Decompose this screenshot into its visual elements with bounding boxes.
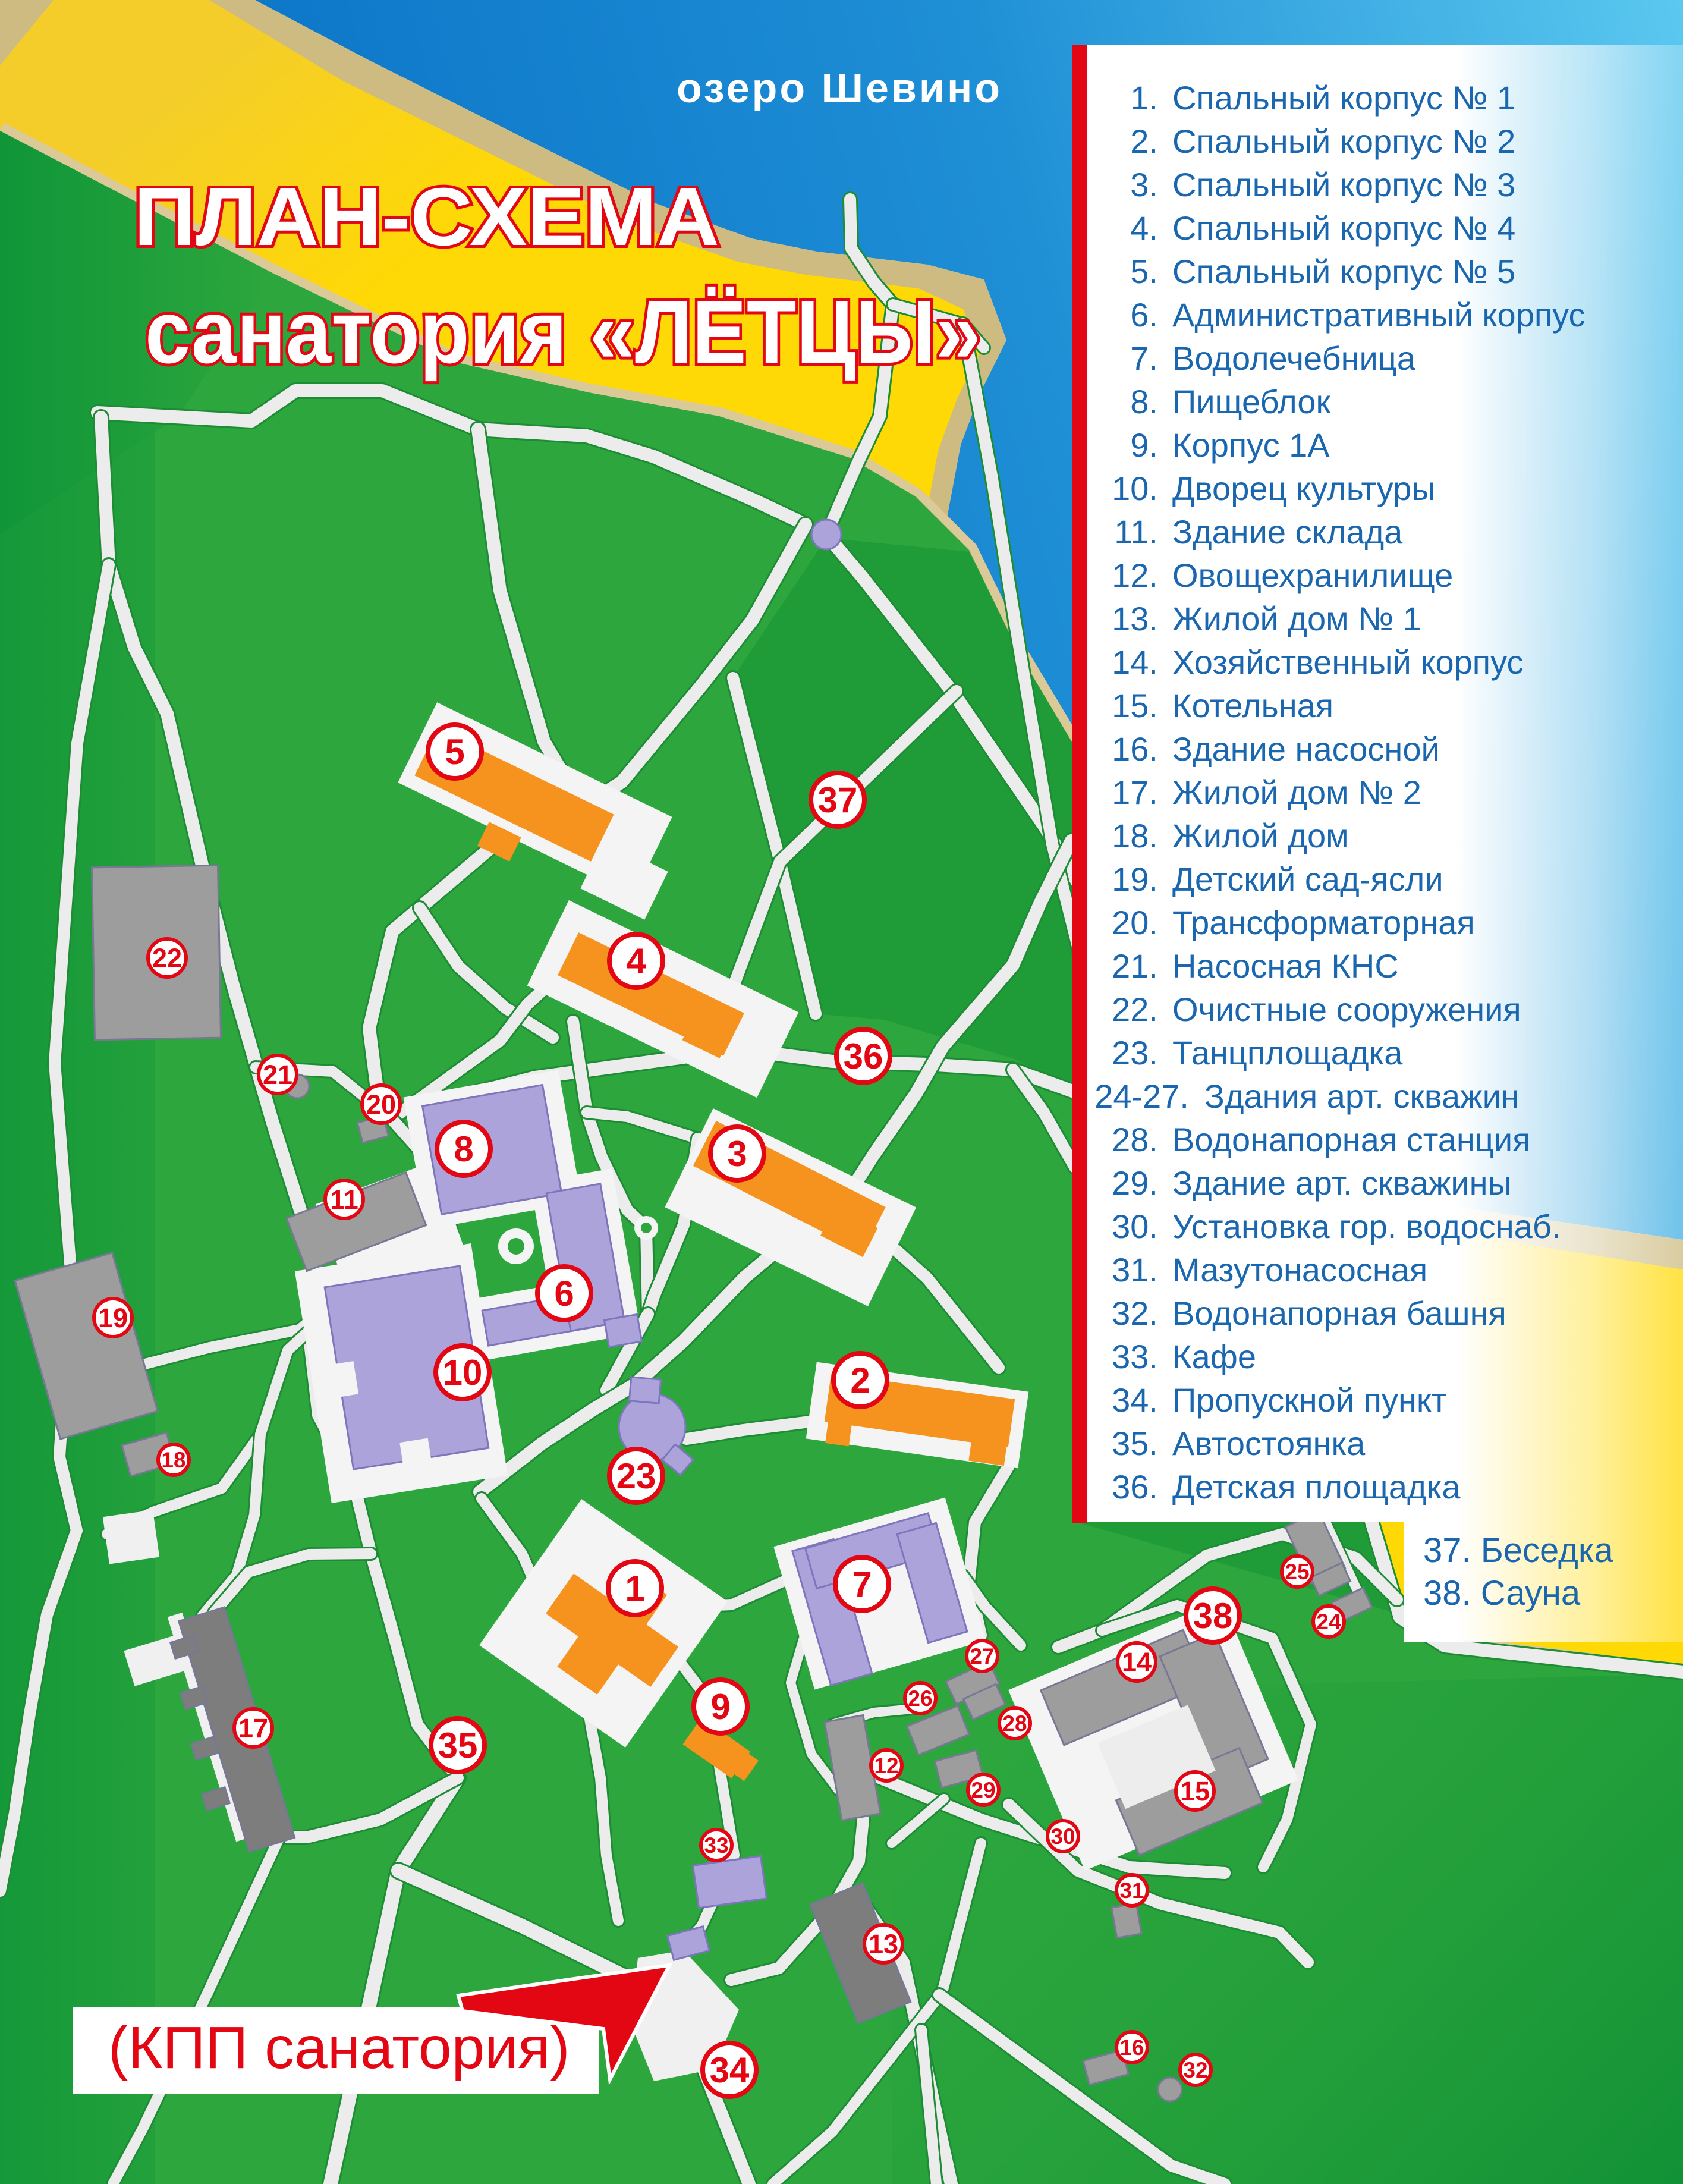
svg-text:17.: 17.	[1112, 774, 1158, 811]
svg-text:36: 36	[844, 1036, 883, 1076]
svg-text:22: 22	[152, 943, 182, 973]
svg-text:Дворец культуры: Дворец культуры	[1172, 470, 1436, 507]
svg-text:1.: 1.	[1130, 79, 1158, 117]
svg-text:Очистные сооружения: Очистные сооружения	[1172, 991, 1521, 1028]
svg-text:Овощехранилище: Овощехранилище	[1172, 557, 1453, 594]
svg-text:Здания арт. скважин: Здания арт. скважин	[1204, 1077, 1520, 1115]
svg-text:7.: 7.	[1130, 340, 1158, 377]
svg-text:(КПП санатория): (КПП санатория)	[108, 2015, 570, 2081]
svg-text:Кафе: Кафе	[1172, 1338, 1256, 1375]
svg-text:16.: 16.	[1112, 730, 1158, 768]
svg-text:30.: 30.	[1112, 1208, 1158, 1245]
svg-text:Водолечебница: Водолечебница	[1172, 340, 1416, 377]
svg-text:санатория «ЛЁТЦЫ»: санатория «ЛЁТЦЫ»	[145, 282, 981, 382]
svg-text:Пищеблок: Пищеблок	[1172, 383, 1331, 420]
svg-text:10: 10	[443, 1353, 483, 1393]
svg-text:36.: 36.	[1112, 1468, 1158, 1506]
svg-text:Котельная: Котельная	[1172, 687, 1333, 724]
svg-text:9: 9	[710, 1687, 730, 1727]
svg-text:Установка гор. водоснаб.: Установка гор. водоснаб.	[1172, 1208, 1561, 1245]
svg-text:4: 4	[626, 941, 646, 981]
svg-text:6.: 6.	[1130, 296, 1158, 334]
svg-text:5.: 5.	[1130, 253, 1158, 290]
svg-text:Спальный корпус № 3: Спальный корпус № 3	[1172, 166, 1515, 203]
svg-text:13: 13	[869, 1929, 898, 1959]
svg-text:Детская площадка: Детская площадка	[1172, 1468, 1461, 1506]
svg-text:Корпус 1А: Корпус 1А	[1172, 426, 1330, 464]
svg-text:13.: 13.	[1112, 600, 1158, 637]
svg-text:16: 16	[1119, 2035, 1144, 2060]
svg-text:Трансформаторная: Трансформаторная	[1172, 904, 1475, 941]
svg-text:19: 19	[98, 1303, 128, 1333]
svg-text:30: 30	[1050, 1824, 1075, 1849]
svg-text:23: 23	[616, 1456, 656, 1496]
svg-text:1: 1	[625, 1569, 644, 1608]
svg-text:31: 31	[1119, 1878, 1144, 1903]
svg-text:33.: 33.	[1112, 1338, 1158, 1375]
svg-text:37: 37	[818, 780, 858, 820]
svg-text:Танцплощадка: Танцплощадка	[1172, 1034, 1403, 1071]
svg-text:22.: 22.	[1112, 991, 1158, 1028]
svg-text:21.: 21.	[1112, 947, 1158, 985]
svg-text:Автостоянка: Автостоянка	[1172, 1425, 1366, 1462]
svg-text:Жилой дом: Жилой дом	[1172, 817, 1349, 854]
svg-text:26: 26	[908, 1686, 932, 1711]
svg-text:32.: 32.	[1112, 1294, 1158, 1332]
svg-text:12: 12	[874, 1754, 898, 1778]
svg-text:28.: 28.	[1112, 1121, 1158, 1158]
svg-text:Спальный корпус № 5: Спальный корпус № 5	[1172, 253, 1515, 290]
svg-text:11.: 11.	[1114, 513, 1158, 551]
svg-text:27: 27	[970, 1644, 994, 1668]
svg-text:20.: 20.	[1112, 904, 1158, 941]
svg-text:29: 29	[971, 1778, 995, 1802]
svg-text:11: 11	[330, 1184, 358, 1215]
svg-text:32: 32	[1183, 2058, 1207, 2082]
svg-text:Насосная КНС: Насосная КНС	[1172, 947, 1399, 985]
svg-text:15: 15	[1180, 1776, 1210, 1806]
svg-text:21: 21	[263, 1060, 292, 1090]
svg-text:17: 17	[238, 1713, 268, 1743]
svg-text:24-27.: 24-27.	[1094, 1077, 1189, 1115]
svg-text:2.: 2.	[1130, 122, 1158, 160]
svg-text:10.: 10.	[1112, 470, 1158, 507]
svg-text:6: 6	[554, 1274, 574, 1313]
svg-text:23.: 23.	[1112, 1034, 1158, 1071]
svg-text:Здание склада: Здание склада	[1172, 513, 1403, 551]
svg-text:Административный корпус: Административный корпус	[1172, 296, 1586, 334]
svg-text:31.: 31.	[1112, 1251, 1158, 1289]
svg-text:Спальный корпус № 2: Спальный корпус № 2	[1172, 122, 1515, 160]
svg-text:14: 14	[1122, 1647, 1152, 1677]
svg-text:8.: 8.	[1130, 383, 1158, 420]
svg-text:Здание насосной: Здание насосной	[1172, 730, 1440, 768]
svg-text:12.: 12.	[1112, 557, 1158, 594]
svg-text:Водонапорная станция: Водонапорная станция	[1172, 1121, 1531, 1158]
svg-text:38: 38	[1193, 1596, 1233, 1636]
svg-text:37. Беседка: 37. Беседка	[1423, 1531, 1614, 1570]
svg-text:38. Сауна: 38. Сауна	[1423, 1574, 1581, 1613]
svg-text:28: 28	[1002, 1711, 1027, 1736]
svg-text:33: 33	[704, 1833, 728, 1858]
svg-text:Водонапорная башня: Водонапорная башня	[1172, 1294, 1506, 1332]
svg-text:20: 20	[366, 1089, 396, 1120]
svg-text:7: 7	[852, 1564, 872, 1604]
svg-text:Мазутонасосная: Мазутонасосная	[1172, 1251, 1427, 1289]
svg-text:35: 35	[438, 1726, 478, 1765]
svg-text:Пропускной пункт: Пропускной пункт	[1172, 1381, 1447, 1419]
svg-text:18.: 18.	[1112, 817, 1158, 854]
svg-text:3: 3	[727, 1134, 747, 1174]
svg-text:Спальный корпус № 4: Спальный корпус № 4	[1172, 209, 1515, 247]
svg-text:18: 18	[161, 1448, 185, 1472]
svg-text:8: 8	[454, 1129, 473, 1169]
svg-text:19.: 19.	[1112, 860, 1158, 898]
svg-text:2: 2	[850, 1360, 870, 1400]
svg-text:29.: 29.	[1112, 1164, 1158, 1202]
svg-text:3.: 3.	[1130, 166, 1158, 203]
svg-text:15.: 15.	[1112, 687, 1158, 724]
svg-text:34.: 34.	[1112, 1381, 1158, 1419]
svg-text:25: 25	[1285, 1560, 1309, 1584]
svg-text:Детский сад-ясли: Детский сад-ясли	[1172, 860, 1443, 898]
svg-text:35.: 35.	[1112, 1425, 1158, 1462]
svg-text:4.: 4.	[1130, 209, 1158, 247]
svg-text:24: 24	[1316, 1610, 1341, 1634]
svg-text:9.: 9.	[1130, 426, 1158, 464]
svg-text:34: 34	[710, 2050, 750, 2090]
svg-text:Спальный корпус № 1: Спальный корпус № 1	[1172, 79, 1515, 117]
svg-text:ПЛАН-СХЕМА: ПЛАН-СХЕМА	[134, 171, 719, 263]
svg-text:Хозяйственный корпус: Хозяйственный корпус	[1172, 643, 1524, 681]
svg-text:Здание арт. скважины: Здание арт. скважины	[1172, 1164, 1512, 1202]
svg-text:Жилой дом № 1: Жилой дом № 1	[1172, 600, 1421, 637]
svg-text:14.: 14.	[1112, 643, 1158, 681]
svg-text:Жилой дом № 2: Жилой дом № 2	[1172, 774, 1421, 811]
svg-text:5: 5	[445, 732, 464, 772]
